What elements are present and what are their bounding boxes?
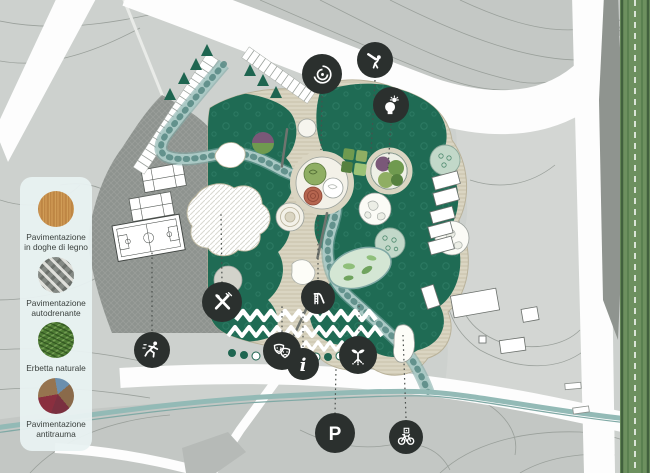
stargazing-icon bbox=[357, 42, 393, 78]
plant-icon bbox=[339, 336, 377, 374]
wood-decking-swatch bbox=[38, 191, 74, 227]
play-circle-cells-1 bbox=[359, 193, 391, 225]
safety-rubber-swatch bbox=[38, 378, 74, 414]
legend-item-wood: Pavimentazione in doghe di legno bbox=[22, 191, 90, 252]
legend-item-rubber: Pavimentazione antitrauma bbox=[22, 378, 90, 439]
tree-lined-road bbox=[620, 0, 650, 473]
parking-icon: P bbox=[315, 413, 355, 453]
road-dash-1 bbox=[565, 382, 581, 389]
legend-item-grass: Erbetta naturale bbox=[26, 322, 86, 373]
svg-text:P: P bbox=[329, 424, 342, 445]
small-plaza-circle bbox=[298, 119, 316, 137]
play-circle-trees bbox=[368, 150, 410, 192]
fountain-circle bbox=[276, 203, 304, 231]
svg-text:i: i bbox=[300, 355, 307, 376]
bike-parking-icon bbox=[389, 420, 423, 454]
running-icon bbox=[134, 332, 170, 368]
legend-item-draining: Pavimentazione autodrenante bbox=[22, 257, 90, 318]
site-plan: i P Pavimentazione in doghe di legno Pav… bbox=[0, 0, 650, 473]
info-icon: i bbox=[287, 348, 319, 380]
tree-circle-split bbox=[252, 132, 274, 154]
slide-icon bbox=[301, 280, 335, 314]
natural-grass-swatch bbox=[38, 322, 74, 358]
permeable-paving-swatch bbox=[38, 257, 74, 293]
labyrinth-icon bbox=[302, 54, 342, 94]
legend-label: Pavimentazione autodrenante bbox=[22, 298, 90, 318]
picnic-icon bbox=[202, 282, 242, 322]
legend-label: Pavimentazione antitrauma bbox=[22, 419, 90, 439]
legend-panel: Pavimentazione in doghe di legno Pavimen… bbox=[20, 177, 92, 451]
idea-icon bbox=[373, 87, 409, 123]
play-circle-mosaic-2 bbox=[430, 145, 460, 175]
legend-label: Erbetta naturale bbox=[26, 363, 86, 373]
legend-label: Pavimentazione in doghe di legno bbox=[22, 232, 90, 252]
